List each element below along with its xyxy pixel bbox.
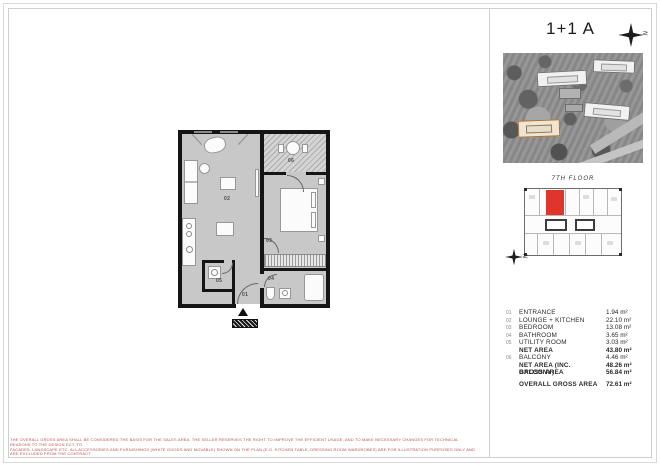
window-top-2 [220, 131, 238, 133]
table-row-overall-gross-area: OVERALL GROSS AREA 72.61 m² [506, 381, 652, 389]
building-highlighted-roof [526, 125, 552, 134]
row-value: 3.65 m² [606, 332, 652, 339]
keyplan-line [593, 189, 594, 215]
hob-burner-1 [186, 223, 192, 229]
shower [304, 274, 324, 301]
entrance-threshold-tag [232, 319, 258, 328]
table-row-net-area: NET AREA 43.80 m² [506, 347, 652, 355]
keyplan-tick [619, 253, 622, 256]
row-number: 01 [506, 310, 519, 316]
wall-bottom-left [178, 304, 236, 308]
row-value: 3.03 m² [606, 339, 652, 346]
row-value: 1.94 m² [606, 309, 652, 316]
row-number: 03 [506, 325, 519, 331]
row-label: ENTRANCE [519, 309, 606, 316]
keyplan-tick [524, 188, 527, 191]
building-3 [584, 102, 631, 121]
site-aerial-photo [503, 53, 643, 163]
table-row: 04 BATHROOM 3.65 m² [506, 332, 652, 340]
row-label: BATHROOM [519, 332, 606, 339]
side-table [199, 163, 210, 174]
keyplan-detail [607, 241, 613, 245]
room-label-lounge: 02 [224, 196, 230, 202]
entrance-arrow-icon [238, 308, 248, 316]
building-3-roof [593, 107, 622, 117]
keyplan-detail [611, 197, 617, 201]
wall-utility-bottom [202, 289, 235, 292]
table-row-net-area-inc-balcony: NET AREA (INC. BALCONY) 48.26 m² [506, 362, 652, 370]
plan-sheet: 01 02 03 04 05 06 1+1 A N 7TH FLOOR [0, 0, 660, 466]
disclaimer: THE OVERALL GROSS AREA SHALL BE CONSIDER… [10, 438, 478, 457]
building-1-roof [546, 75, 577, 84]
keyplan-line [565, 189, 566, 215]
row-label: OVERALL GROSS AREA [519, 381, 606, 388]
keyplan-compass-icon: N [505, 248, 523, 266]
table-row: 02 LOUNGE + KITCHEN 22.10 m² [506, 317, 652, 325]
keyplan-tick [619, 188, 622, 191]
row-label: LOUNGE + KITCHEN [519, 317, 606, 324]
keyplan-line [539, 189, 540, 215]
dining-table [216, 222, 234, 236]
row-label: UTILITY ROOM [519, 339, 606, 346]
floor-key-plan [524, 188, 622, 256]
row-value: 48.26 m² [606, 362, 652, 369]
floor-label: 7TH FLOOR [503, 176, 643, 182]
nightstand-2 [318, 235, 325, 242]
north-compass-icon: N [618, 22, 644, 48]
wardrobe [264, 254, 326, 267]
row-label: GROSS AREA [519, 369, 606, 376]
wall-corridor-left [232, 260, 235, 304]
table-row: 01 ENTRANCE 1.94 m² [506, 309, 652, 317]
floor-plan: 01 02 03 04 05 06 [178, 130, 330, 332]
keyplan-line [579, 189, 580, 215]
keyplan-detail [575, 241, 581, 245]
pillow-1 [311, 192, 316, 208]
area-table: 01 ENTRANCE 1.94 m² 02 LOUNGE + KITCHEN … [506, 309, 652, 388]
row-label: BEDROOM [519, 324, 606, 331]
room-label-utility: 05 [216, 278, 222, 284]
keyplan-line [569, 233, 570, 255]
wall-bathroom-top [262, 268, 326, 271]
row-value: 43.80 m² [606, 347, 652, 354]
row-number: 05 [506, 340, 519, 346]
keyplan-compass-letter: N [521, 254, 527, 258]
building-2-roof [601, 63, 627, 70]
wall-utility-left [202, 260, 205, 292]
keyplan-detail [529, 195, 535, 199]
row-number: 06 [506, 355, 519, 361]
wall-balcony-a [262, 172, 286, 175]
keyplan-line [525, 215, 621, 216]
row-value: 22.10 m² [606, 317, 652, 324]
row-value: 56.84 m² [606, 369, 652, 376]
sofa [184, 160, 198, 204]
panel-divider [489, 8, 490, 458]
wall-balcony-b [306, 172, 326, 175]
highlighted-unit [546, 190, 564, 215]
keyplan-core-2 [575, 219, 595, 231]
row-number: 04 [506, 333, 519, 339]
keyplan-line [537, 233, 538, 255]
keyplan-core-1 [545, 219, 567, 231]
room-label-balcony: 06 [288, 158, 294, 164]
room-label-bathroom: 04 [268, 276, 274, 282]
keyplan-line [585, 233, 586, 255]
wall-right [326, 130, 330, 308]
building-1 [536, 69, 587, 87]
coffee-table [220, 177, 236, 190]
balcony-chair-1 [278, 144, 284, 153]
room-label-bedroom: 03 [266, 238, 272, 244]
table-row: 06 BALCONY 4.46 m² [506, 354, 652, 362]
table-row: 03 BEDROOM 13.08 m² [506, 324, 652, 332]
keyplan-line [601, 233, 602, 255]
row-label: BALCONY [519, 354, 606, 361]
row-number: 02 [506, 318, 519, 324]
keyplan-detail [543, 241, 549, 245]
building-4 [559, 88, 581, 99]
row-value: 4.46 m² [606, 354, 652, 361]
keyplan-line [525, 233, 621, 234]
balcony-table [286, 141, 300, 155]
row-value: 72.61 m² [606, 381, 652, 388]
washing-machine-drum [211, 269, 218, 276]
building-2 [592, 59, 634, 74]
wall-utility-top [202, 260, 224, 263]
kitchen-sink [186, 246, 193, 253]
pillow-2 [311, 212, 316, 228]
keyplan-detail [583, 195, 589, 199]
disclaimer-line-2: FACADES, LANDSCAPE ETC. ALL ACCESSORIES … [10, 448, 478, 458]
compass-letter: N [641, 31, 647, 35]
row-value: 13.08 m² [606, 324, 652, 331]
keyplan-line [607, 189, 608, 215]
row-label: NET AREA [519, 347, 606, 354]
wall-bottom-right [260, 304, 330, 308]
table-row: 05 UTILITY ROOM 3.03 m² [506, 339, 652, 347]
balcony-chair-2 [302, 144, 308, 153]
hob-burner-2 [186, 231, 192, 237]
keyplan-line [553, 233, 554, 255]
building-5 [565, 104, 583, 113]
toilet [266, 287, 275, 300]
wall-bathroom-left-b [260, 288, 264, 304]
room-label-entrance: 01 [242, 292, 248, 298]
window-top-1 [194, 131, 212, 133]
table-row-gross-area: GROSS AREA 56.84 m² [506, 369, 652, 377]
bathroom-sink-basin [282, 290, 288, 296]
nightstand-1 [318, 178, 325, 185]
tv-unit [255, 169, 259, 197]
building-highlighted [518, 119, 561, 137]
